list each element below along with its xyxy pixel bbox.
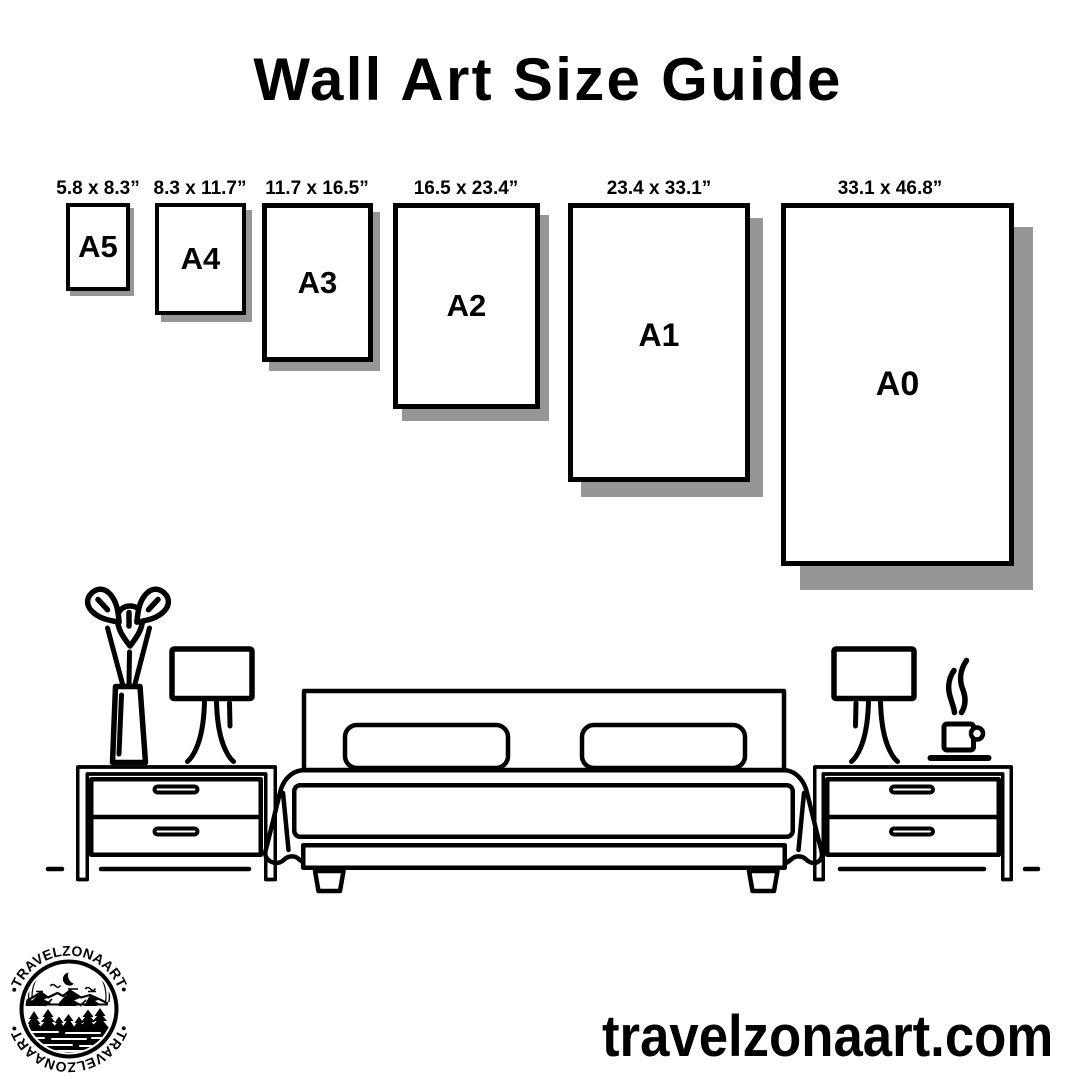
svg-text:•TRAVELZONAART•: •TRAVELZONAART• xyxy=(5,942,132,994)
